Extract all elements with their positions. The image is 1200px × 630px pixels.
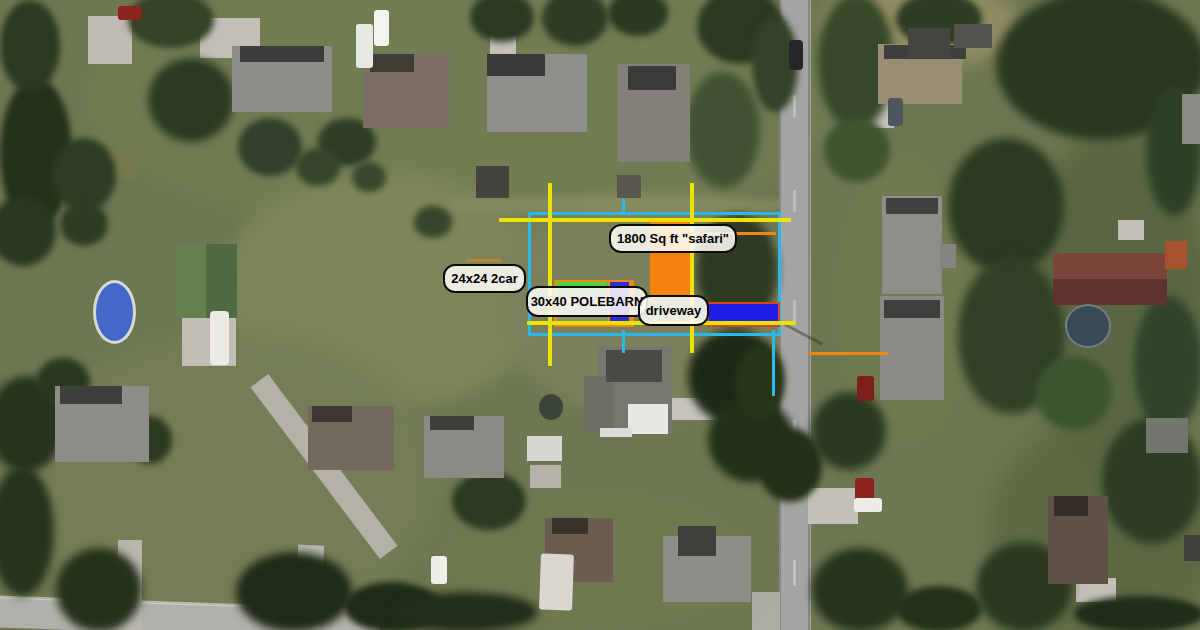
- satellite-map: 1800 Sq ft "safari" 24x24 2car 30x40 POL…: [0, 0, 1200, 630]
- label-30x40-polebarn: 30x40 POLEBARN: [526, 286, 648, 317]
- label-24x24-2car: 24x24 2car: [443, 264, 526, 293]
- label-driveway: driveway: [638, 295, 709, 326]
- plan-labels: 1800 Sq ft "safari" 24x24 2car 30x40 POL…: [0, 0, 1200, 630]
- label-1800-sqft-safari: 1800 Sq ft "safari": [609, 224, 737, 253]
